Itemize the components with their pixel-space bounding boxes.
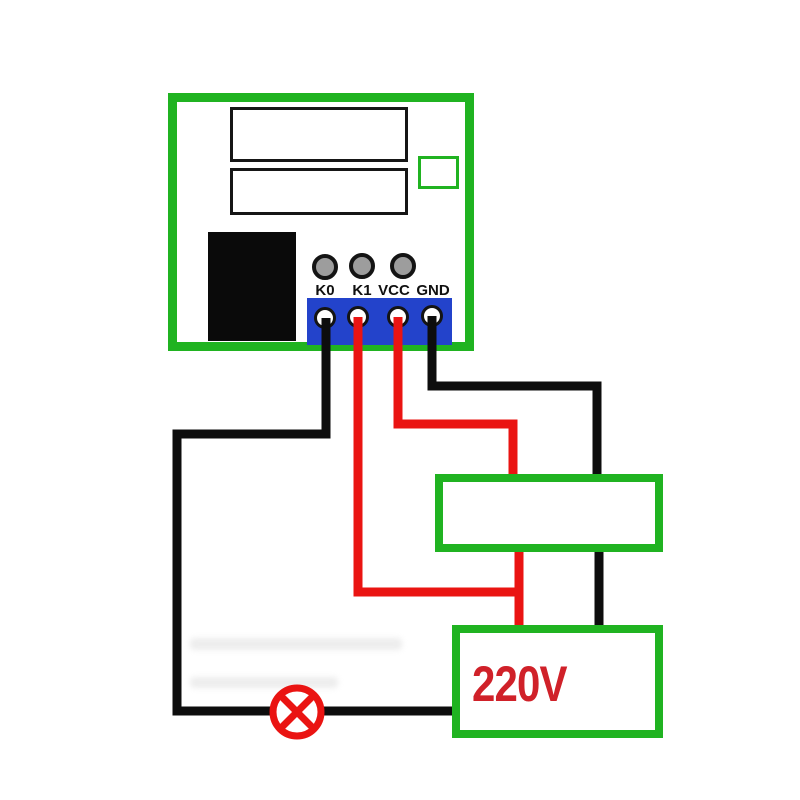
wire-layer xyxy=(0,0,800,800)
wire-vcc-to-adapter xyxy=(398,317,513,480)
power-adapter-box xyxy=(435,474,663,552)
wiring-diagram: K0 K1 VCC GND 220V xyxy=(0,0,800,800)
wire-k0-to-lamp xyxy=(177,318,457,711)
lamp-circle-cross-icon xyxy=(273,688,321,736)
mains-voltage-label: 220V xyxy=(472,659,567,709)
mains-source-box: 220V xyxy=(452,625,663,738)
